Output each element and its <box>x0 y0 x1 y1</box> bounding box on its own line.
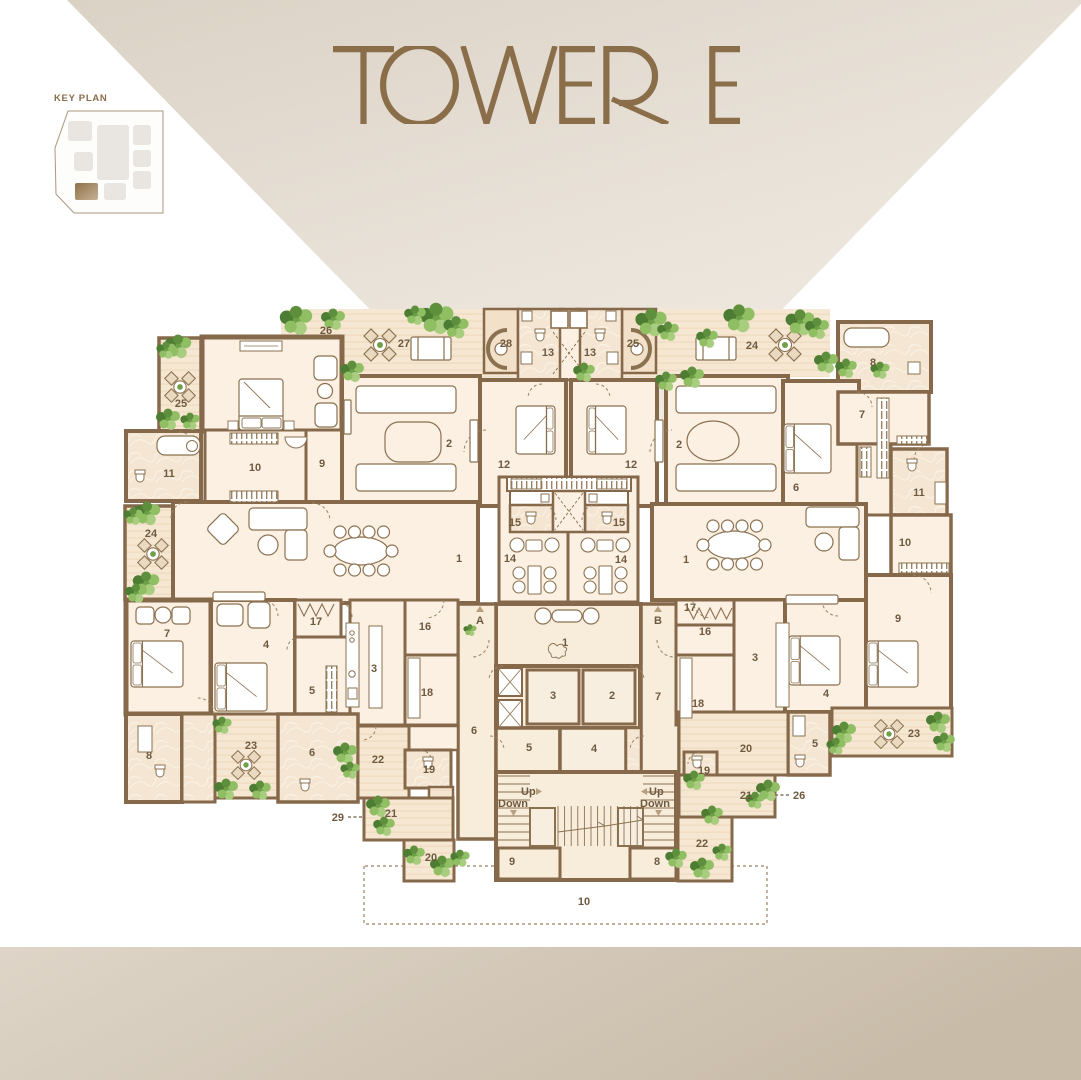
svg-text:24: 24 <box>145 528 158 540</box>
svg-text:3: 3 <box>371 663 377 675</box>
svg-text:23: 23 <box>245 740 257 752</box>
svg-text:23: 23 <box>908 728 920 740</box>
svg-text:7: 7 <box>859 409 865 421</box>
svg-text:4: 4 <box>591 743 598 755</box>
svg-text:9: 9 <box>509 856 515 868</box>
svg-text:2: 2 <box>609 690 615 702</box>
svg-text:Down: Down <box>640 798 670 810</box>
svg-text:22: 22 <box>696 838 708 850</box>
svg-text:4: 4 <box>823 688 830 700</box>
svg-text:20: 20 <box>425 852 437 864</box>
svg-text:6: 6 <box>309 747 315 759</box>
svg-text:KEY PLAN: KEY PLAN <box>54 93 107 104</box>
svg-text:5: 5 <box>812 738 818 750</box>
svg-text:5: 5 <box>309 685 315 697</box>
svg-text:Up: Up <box>521 786 536 798</box>
svg-text:21: 21 <box>385 808 397 820</box>
svg-text:7: 7 <box>655 691 661 703</box>
svg-text:11: 11 <box>913 487 925 499</box>
svg-text:1: 1 <box>456 553 462 565</box>
svg-text:25: 25 <box>175 398 187 410</box>
svg-text:18: 18 <box>421 687 433 699</box>
svg-text:2: 2 <box>676 439 682 451</box>
svg-text:10: 10 <box>899 537 911 549</box>
svg-text:14: 14 <box>615 554 628 566</box>
svg-text:10: 10 <box>578 896 590 908</box>
svg-text:14: 14 <box>504 553 517 565</box>
svg-text:8: 8 <box>870 357 876 369</box>
svg-text:16: 16 <box>419 621 431 633</box>
svg-text:25: 25 <box>627 338 639 350</box>
svg-text:10: 10 <box>249 462 261 474</box>
svg-text:28: 28 <box>500 338 512 350</box>
svg-text:21: 21 <box>740 790 752 802</box>
svg-text:27: 27 <box>398 338 410 350</box>
svg-text:2: 2 <box>446 438 452 450</box>
svg-text:1: 1 <box>683 554 689 566</box>
svg-text:26: 26 <box>793 790 805 802</box>
svg-text:16: 16 <box>699 626 711 638</box>
svg-text:3: 3 <box>752 652 758 664</box>
svg-text:13: 13 <box>542 347 554 359</box>
svg-text:5: 5 <box>526 742 532 754</box>
svg-text:9: 9 <box>895 613 901 625</box>
svg-text:3: 3 <box>550 690 556 702</box>
svg-text:15: 15 <box>613 517 625 529</box>
svg-text:7: 7 <box>164 628 170 640</box>
svg-text:29: 29 <box>332 812 344 824</box>
svg-text:24: 24 <box>746 340 759 352</box>
svg-text:12: 12 <box>625 459 637 471</box>
svg-text:6: 6 <box>471 725 477 737</box>
svg-text:9: 9 <box>319 458 325 470</box>
svg-text:8: 8 <box>654 856 660 868</box>
svg-text:22: 22 <box>372 754 384 766</box>
svg-text:19: 19 <box>698 765 710 777</box>
svg-text:15: 15 <box>509 517 521 529</box>
svg-text:20: 20 <box>740 743 752 755</box>
svg-text:Down: Down <box>498 798 528 810</box>
svg-text:18: 18 <box>692 698 704 710</box>
svg-text:6: 6 <box>793 482 799 494</box>
svg-text:Up: Up <box>649 786 664 798</box>
svg-text:13: 13 <box>584 347 596 359</box>
svg-text:B: B <box>654 615 662 627</box>
svg-text:17: 17 <box>310 616 322 628</box>
svg-text:4: 4 <box>263 639 270 651</box>
svg-text:12: 12 <box>498 459 510 471</box>
svg-text:19: 19 <box>423 764 435 776</box>
svg-text:26: 26 <box>320 325 332 337</box>
svg-text:11: 11 <box>163 468 175 480</box>
svg-text:A: A <box>476 615 484 627</box>
